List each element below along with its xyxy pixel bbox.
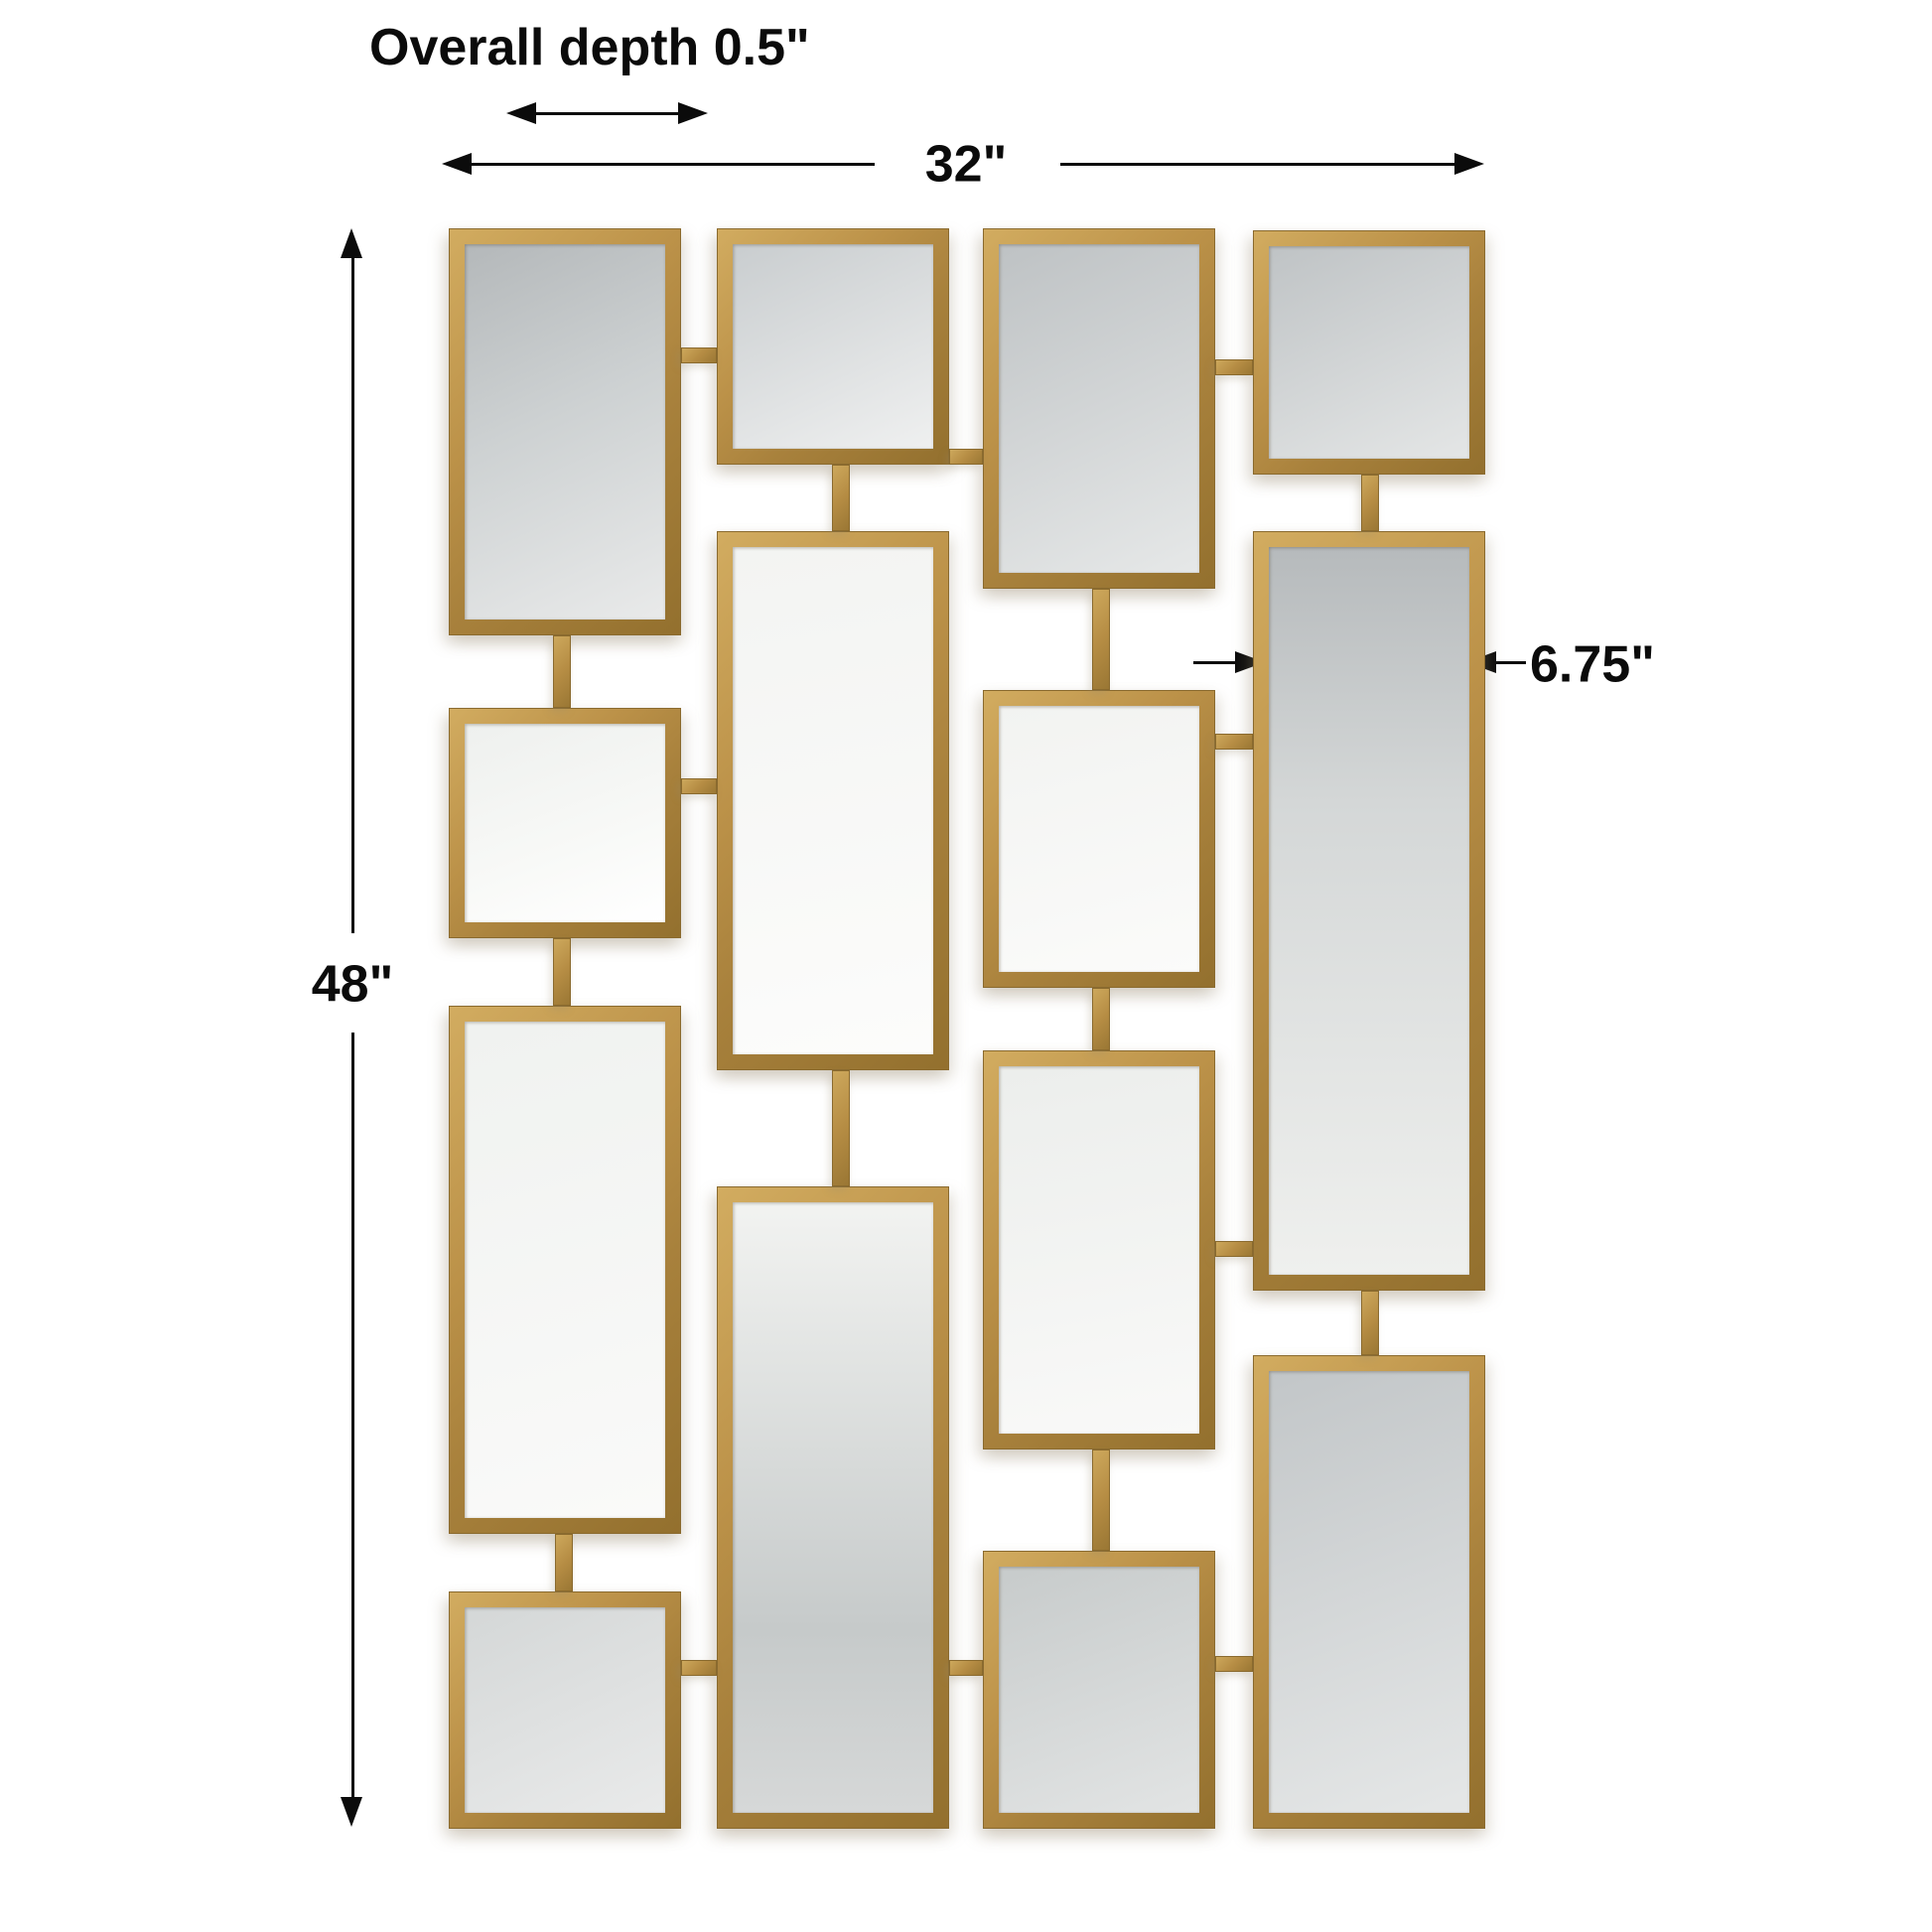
mirror-glass (465, 724, 665, 922)
mirror-glass (999, 1066, 1199, 1434)
width-dimension-line-right (1060, 163, 1454, 166)
mirror-glass (733, 244, 933, 449)
mirror-glass (1269, 547, 1469, 1275)
width-arrow-right-icon (1454, 153, 1484, 175)
mirror-glass (465, 244, 665, 620)
frame-connector-c2c3-h1 (949, 449, 983, 465)
frame-connector-c4-v1 (1361, 475, 1379, 531)
panel-width-line-right (1494, 661, 1526, 664)
mirror-glass (999, 706, 1199, 972)
frame-connector-c2-v2 (832, 1070, 850, 1186)
frame-connector-c4-v2 (1361, 1291, 1379, 1355)
mirror-glass (1269, 246, 1469, 459)
mirror-panel-c1-r3 (449, 1006, 681, 1534)
mirror-panel-c1-r2 (449, 708, 681, 938)
frame-connector-c3-v3 (1092, 1449, 1110, 1551)
mirror-panel-c2-r2 (717, 531, 949, 1070)
overall-depth-label: Overall depth 0.5" (369, 20, 810, 76)
frame-connector-c3-v2 (1092, 988, 1110, 1050)
mirror-glass (465, 1022, 665, 1518)
mirror-glass (733, 1202, 933, 1813)
width-dimension-line-left (468, 163, 875, 166)
frame-connector-c3c4-h3 (1215, 1241, 1253, 1257)
frame-connector-c3c4-h1 (1215, 359, 1253, 375)
mirror-panel-c3-r1 (983, 228, 1215, 589)
panel-width-line-left (1193, 661, 1237, 664)
overall-width-label: 32" (925, 136, 1008, 193)
mirror-glass (999, 1567, 1199, 1813)
mirror-panel-c3-r2 (983, 690, 1215, 988)
mirror-panel-c3-r4 (983, 1551, 1215, 1829)
mirror-panel-c1-r4 (449, 1591, 681, 1829)
frame-connector-c2-v1 (832, 465, 850, 531)
panel-width-label: 6.75" (1530, 636, 1655, 693)
mirror-panel-c2-r3 (717, 1186, 949, 1829)
mirror-panel-c4-r3 (1253, 1355, 1485, 1829)
frame-connector-c3c4-h2 (1215, 734, 1253, 750)
depth-dimension-line (532, 112, 680, 115)
depth-arrow-right-icon (678, 102, 708, 124)
mirror-glass (465, 1607, 665, 1813)
frame-connector-c3c4-h4 (1215, 1656, 1253, 1672)
mirror-panel-c4-r1 (1253, 230, 1485, 475)
frame-connector-c1c2-h3 (681, 1660, 717, 1676)
frame-connector-c1-v3 (555, 1534, 573, 1591)
height-arrow-down-icon (341, 1797, 362, 1827)
height-dimension-line-top (351, 254, 354, 933)
mirror-panel-c3-r3 (983, 1050, 1215, 1449)
mirror-panel-c2-r1 (717, 228, 949, 465)
height-dimension-line-bottom (351, 1033, 354, 1799)
frame-connector-c1c2-h1 (681, 347, 717, 363)
mirror-glass (733, 547, 933, 1054)
frame-connector-c2c3-h2 (949, 1660, 983, 1676)
mirror-panel-c4-r2 (1253, 531, 1485, 1291)
overall-height-label: 48" (312, 956, 394, 1013)
product-dimension-diagram: Overall depth 0.5" 32" 48" 23.5" 6.75" (0, 0, 1932, 1932)
mirror-glass (1269, 1371, 1469, 1813)
frame-connector-c1c2-h2 (681, 778, 717, 794)
mirror-panel-c1-r1 (449, 228, 681, 635)
mirror-glass (999, 244, 1199, 573)
frame-connector-c3-v1 (1092, 589, 1110, 690)
frame-connector-c1-v1 (553, 635, 571, 708)
frame-connector-c1-v2 (553, 938, 571, 1006)
